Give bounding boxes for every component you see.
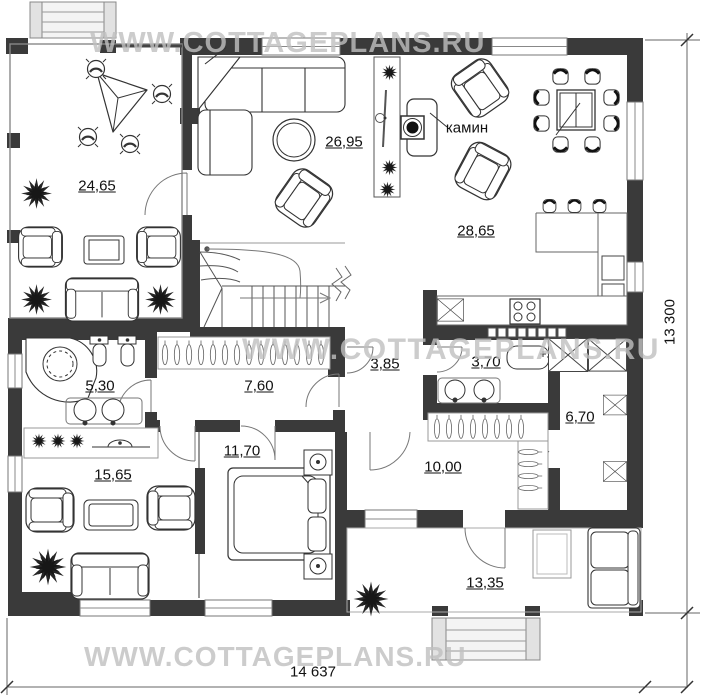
room-area-corridor: 7,60 (244, 378, 273, 395)
round-table-icon (273, 119, 315, 161)
chair-icon (534, 90, 549, 105)
chair-icon (152, 84, 172, 104)
armchair-icon (26, 488, 74, 532)
plant-icon (380, 182, 396, 198)
plant-icon (145, 284, 176, 315)
dimension-height-label: 13 300 (662, 299, 679, 345)
fridge-icon (437, 299, 463, 321)
armchair-icon (447, 54, 513, 121)
console-shelf-icon (24, 428, 158, 458)
chair-icon (120, 134, 140, 154)
plant-icon (354, 582, 389, 617)
plant-icon (382, 65, 398, 81)
bench-icon (588, 528, 640, 608)
nightstand-icon (304, 450, 332, 475)
living-room-furniture (198, 47, 447, 231)
plant-icon (382, 160, 398, 176)
lounge-furniture (24, 428, 195, 599)
bar-stool-icon (593, 200, 606, 213)
chair-icon (604, 90, 619, 105)
room-area-bedroom: 11,70 (224, 443, 260, 460)
dining-table-icon (556, 90, 595, 135)
bar-stool-icon (568, 200, 581, 213)
double-sink-icon (438, 378, 500, 403)
chair-icon (585, 69, 600, 84)
armchair-icon (451, 138, 515, 204)
room-area-terrace: 24,65 (78, 178, 116, 195)
kitchen-furniture (437, 200, 627, 337)
sofa-icon (65, 278, 138, 321)
chair-icon (553, 137, 568, 152)
armchair-icon (137, 227, 181, 267)
armchair-icon (147, 486, 195, 530)
chair-icon (86, 59, 106, 79)
nightstand-icon (304, 554, 332, 579)
bathroom1-fixtures (26, 336, 142, 425)
chair-icon (78, 127, 98, 147)
room-area-kitchen: 28,65 (457, 223, 495, 240)
oven-icon (602, 256, 624, 280)
armchair-icon (19, 227, 63, 267)
floor-plan: WWW.COTTAGEPLANS.RU WWW.COTTAGEPLANS.RU … (0, 0, 702, 697)
tv-partition-icon (374, 57, 400, 197)
sofa-icon (71, 553, 149, 599)
room-area-porch: 13,35 (466, 575, 504, 592)
watermark-top: WWW.COTTAGEPLANS.RU (90, 27, 485, 60)
armchair-icon (271, 164, 337, 231)
chair-icon (553, 69, 568, 84)
terrace-table-icon (97, 73, 147, 132)
chair-icon (585, 137, 600, 152)
room-area-hall: 10,00 (424, 459, 462, 476)
room-area-pantry: 6,70 (565, 409, 594, 426)
stove-icon (510, 299, 540, 324)
plant-icon (21, 284, 52, 315)
watermark-middle: WWW.COTTAGEPLANS.RU (242, 333, 660, 367)
fireplace-icon (401, 99, 447, 156)
room-area-bathroom1: 5,30 (85, 378, 114, 395)
corner-sofa-icon (198, 47, 345, 175)
toilet-icon (90, 336, 108, 366)
bar-stool-icon (543, 200, 556, 213)
toilet-icon (118, 336, 136, 366)
chair-icon (604, 116, 619, 131)
plant-icon (30, 549, 67, 586)
fireplace-label: камин (446, 120, 488, 137)
room-area-lounge: 15,65 (94, 467, 132, 484)
double-sink-icon (66, 398, 142, 425)
room-area-living: 26,95 (325, 134, 363, 151)
chair-icon (534, 116, 549, 131)
bed-icon (228, 468, 330, 560)
bedroom-furniture (228, 450, 332, 579)
watermark-bottom: WWW.COTTAGEPLANS.RU (84, 641, 466, 673)
stairs-icon (200, 247, 351, 327)
plant-icon (21, 178, 52, 209)
